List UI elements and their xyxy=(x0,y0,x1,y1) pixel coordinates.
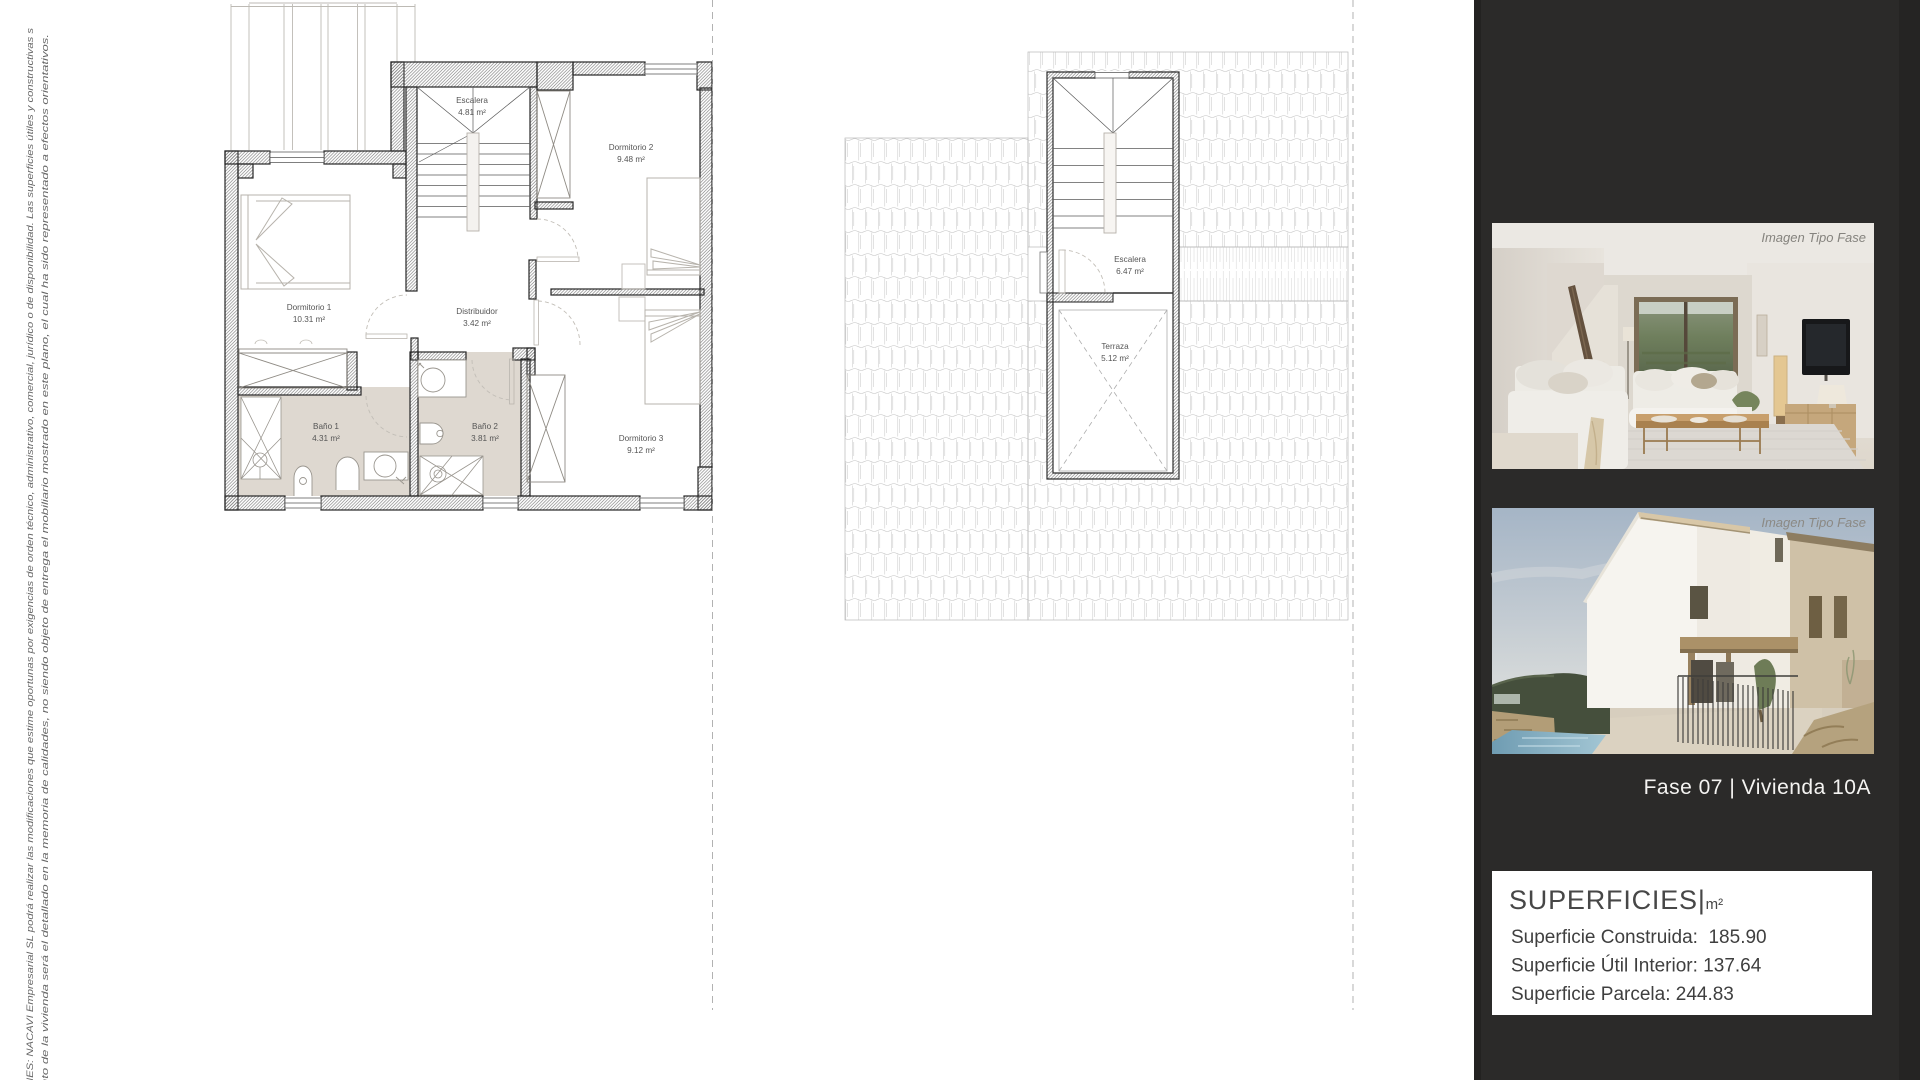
svg-text:9.12 m²: 9.12 m² xyxy=(627,446,655,455)
svg-text:Distribuidor: Distribuidor xyxy=(456,307,498,316)
svg-text:3.42 m²: 3.42 m² xyxy=(463,319,491,328)
svg-text:nto de la vivienda será el det: nto de la vivienda será el detallado en … xyxy=(40,34,51,1080)
svg-text:Dormitorio 3: Dormitorio 3 xyxy=(619,434,664,443)
svg-text:Baño 1: Baño 1 xyxy=(313,422,339,431)
svg-text:Superficie Parcela: 244.83: Superficie Parcela: 244.83 xyxy=(1511,984,1734,1005)
svg-text:Dormitorio 2: Dormitorio 2 xyxy=(609,143,654,152)
svg-text:Imagen Tipo Fase: Imagen Tipo Fase xyxy=(1761,230,1866,245)
svg-text:4.81 m²: 4.81 m² xyxy=(458,108,486,117)
svg-text:Imagen Tipo Fase: Imagen Tipo Fase xyxy=(1761,515,1866,530)
svg-text:Dormitorio 1: Dormitorio 1 xyxy=(287,303,332,312)
svg-text:Escalera: Escalera xyxy=(456,96,488,105)
svg-text:6.47 m²: 6.47 m² xyxy=(1116,267,1144,276)
svg-text:Fase 07 | Vivienda 10A: Fase 07 | Vivienda 10A xyxy=(1644,776,1871,799)
svg-text:5.12 m²: 5.12 m² xyxy=(1101,354,1129,363)
svg-text:Terraza: Terraza xyxy=(1101,342,1129,351)
svg-text:Superficie Útil Interior: 137.: Superficie Útil Interior: 137.64 xyxy=(1511,955,1762,977)
svg-text:Baño 2: Baño 2 xyxy=(472,422,498,431)
svg-text:3.81 m²: 3.81 m² xyxy=(471,434,499,443)
svg-text:9.48 m²: 9.48 m² xyxy=(617,155,645,164)
svg-text:Superficie Construida: 185.90: Superficie Construida: 185.90 xyxy=(1511,927,1767,948)
svg-text:Escalera: Escalera xyxy=(1114,255,1146,264)
svg-text:SUPERFICIES|m²: SUPERFICIES|m² xyxy=(1509,885,1723,915)
svg-text:NES: NACAVI Empresarial SL pod: NES: NACAVI Empresarial SL podrá realiza… xyxy=(25,28,36,1080)
svg-text:4.31 m²: 4.31 m² xyxy=(312,434,340,443)
svg-text:10.31 m²: 10.31 m² xyxy=(293,315,326,324)
